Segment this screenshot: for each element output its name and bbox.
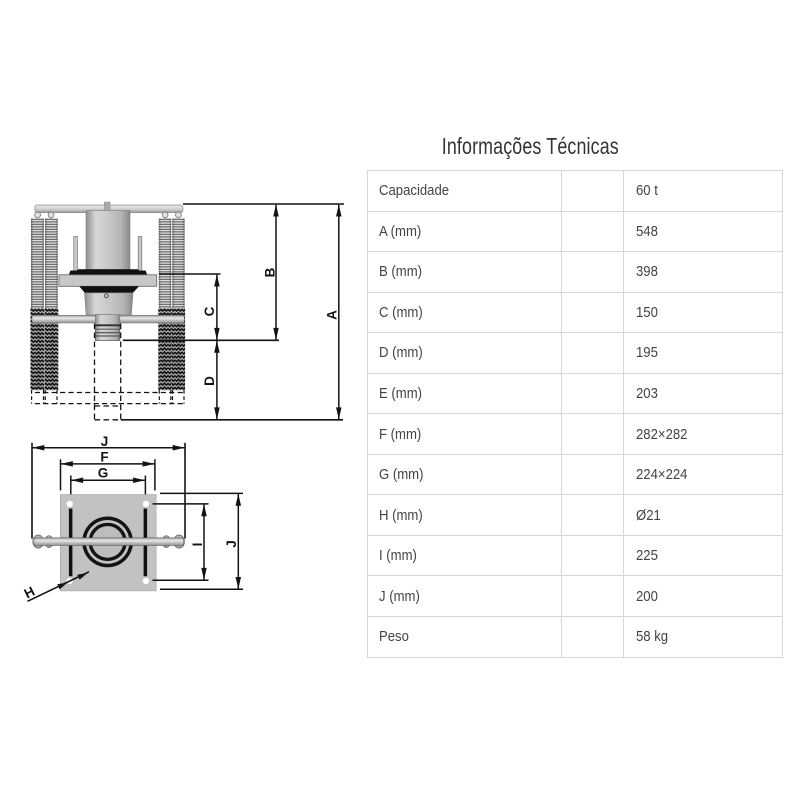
svg-text:A: A <box>325 310 340 320</box>
svg-text:I: I <box>190 543 205 547</box>
svg-text:B: B <box>263 267 278 277</box>
svg-text:C: C <box>202 306 217 316</box>
svg-text:J: J <box>101 434 109 449</box>
svg-text:J: J <box>224 540 239 548</box>
svg-text:D: D <box>202 376 217 386</box>
svg-text:H: H <box>22 584 37 602</box>
svg-text:F: F <box>100 449 108 464</box>
svg-text:G: G <box>98 466 109 481</box>
